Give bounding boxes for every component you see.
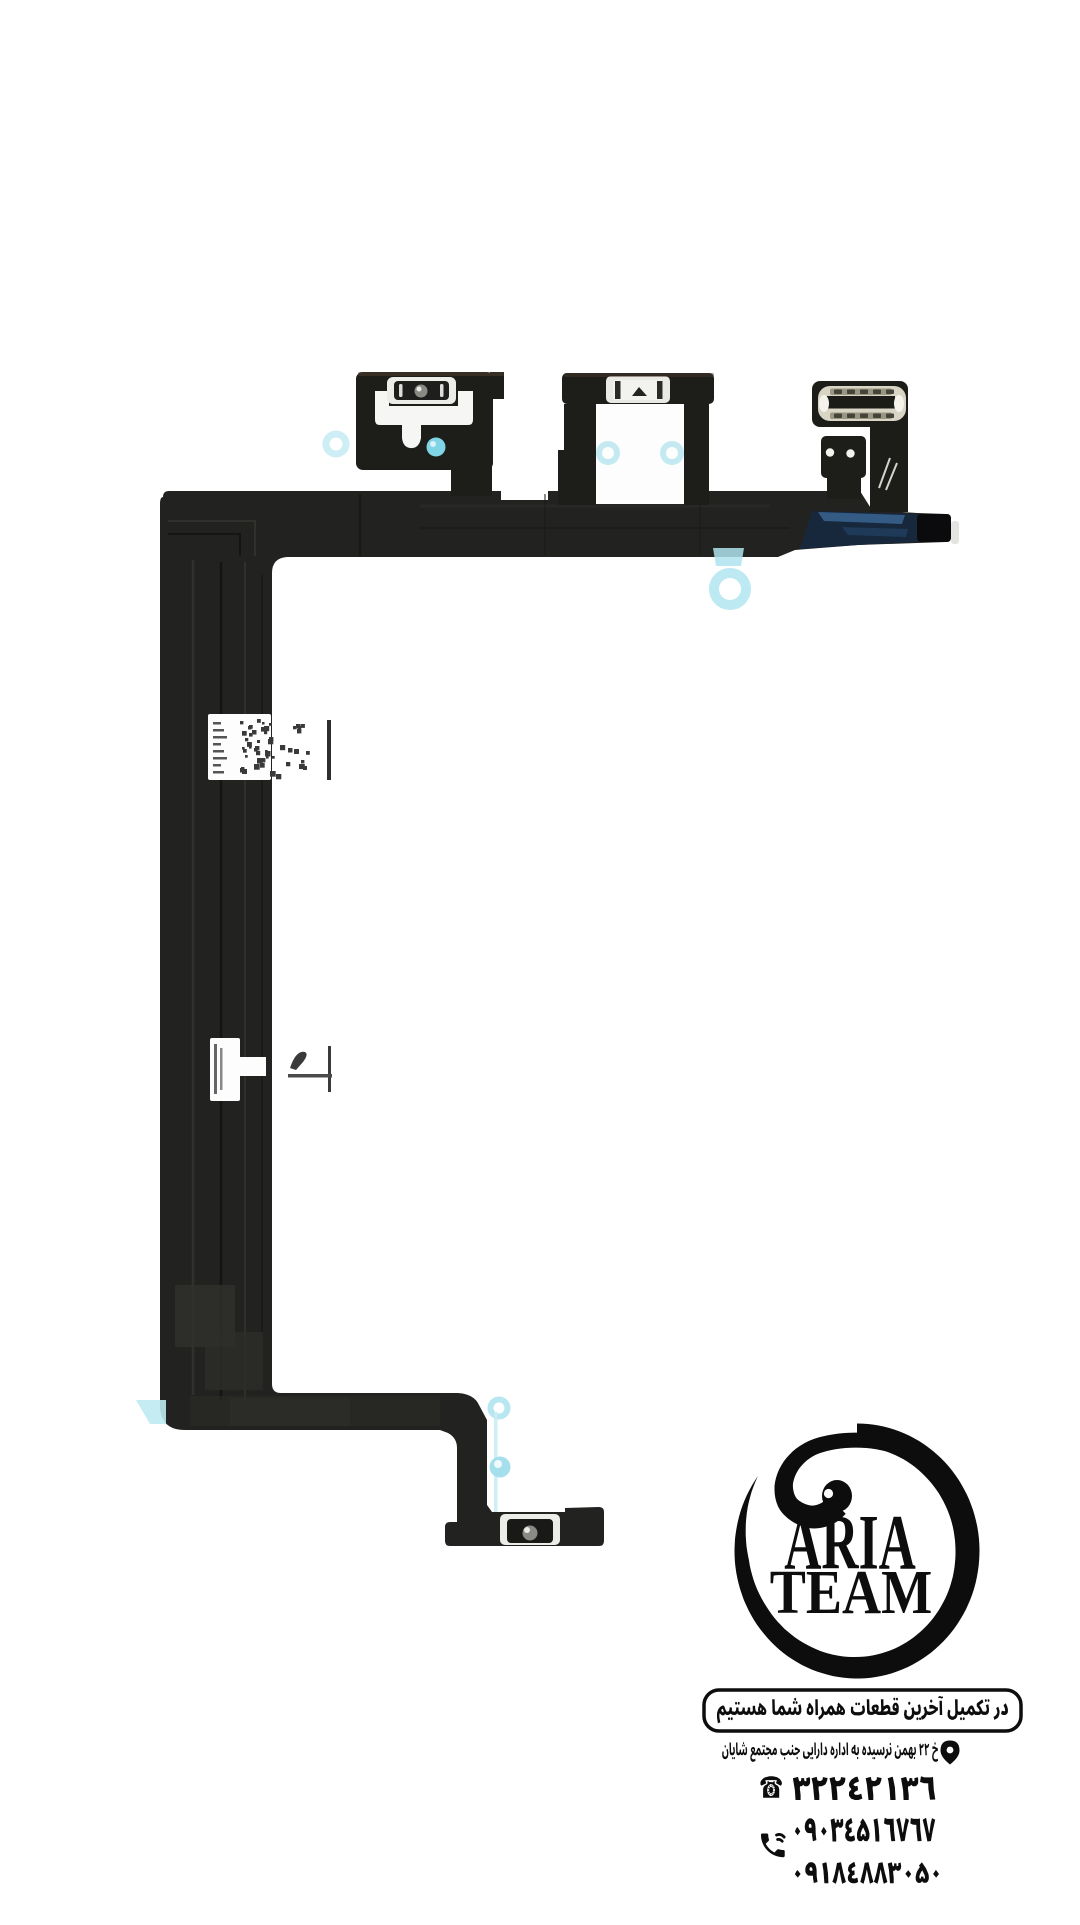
svg-text:TEAM: TEAM bbox=[770, 1559, 932, 1627]
